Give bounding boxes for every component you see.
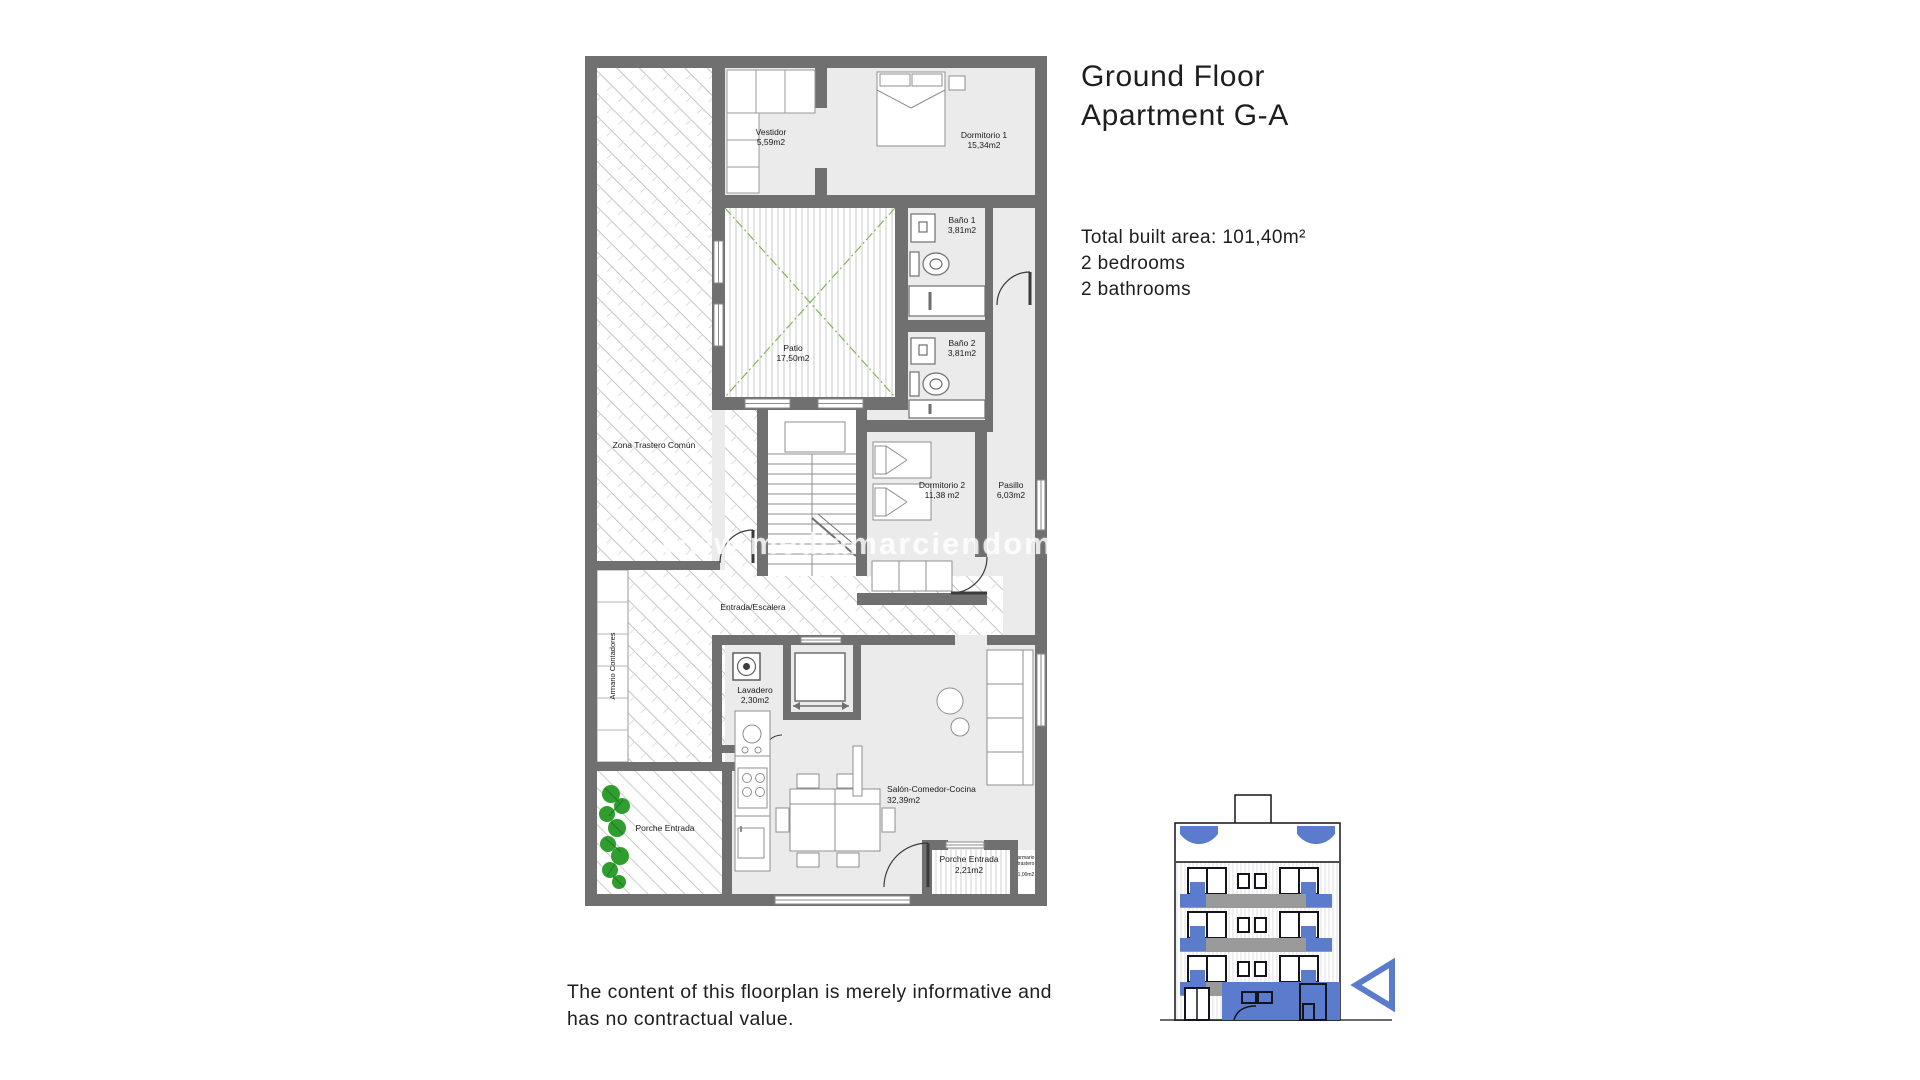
kitchen-counter (735, 711, 770, 871)
disclaimer: The content of this floorplan is merely … (567, 979, 1052, 1033)
building-ground-floor (1185, 982, 1340, 1020)
disclaimer-line-2: has no contractual value. (567, 1006, 1052, 1033)
svg-text:6,03m2: 6,03m2 (997, 490, 1026, 500)
svg-text:17,50m2: 17,50m2 (776, 353, 809, 363)
title-line-2: Apartment G-A (1081, 96, 1289, 135)
floorplan-drawing: Vestidor 5,59m2 Dormitorio 1 15,34m2 Bañ… (585, 56, 1047, 906)
building-elevation-drawing (1160, 790, 1405, 1035)
page: Vestidor 5,59m2 Dormitorio 1 15,34m2 Bañ… (0, 0, 1920, 1080)
svg-text:Vestidor: Vestidor (756, 127, 787, 137)
svg-text:Armario Contadores: Armario Contadores (608, 632, 617, 699)
svg-text:Zona Trastero Común: Zona Trastero Común (613, 440, 696, 450)
room-label: Vestidor 5,59m2 (756, 127, 787, 147)
patio (725, 208, 895, 397)
svg-text:Baño 1: Baño 1 (949, 215, 976, 225)
svg-text:Dormitorio 2: Dormitorio 2 (919, 480, 966, 490)
svg-text:Baño 2: Baño 2 (949, 338, 976, 348)
room-label: Entrada/Escalera (720, 602, 785, 612)
room-label: Dormitorio 1 15,34m2 (961, 130, 1008, 150)
svg-text:trastero: trastero (1018, 861, 1035, 867)
svg-text:3,81m2: 3,81m2 (948, 348, 977, 358)
svg-text:5,59m2: 5,59m2 (757, 137, 786, 147)
svg-text:Entrada/Escalera: Entrada/Escalera (720, 602, 785, 612)
svg-text:Patio: Patio (783, 343, 803, 353)
svg-text:Salón-Comedor-Cocina: Salón-Comedor-Cocina (887, 784, 976, 794)
building-elevation-inset (1160, 790, 1405, 1035)
svg-text:2,21m2: 2,21m2 (955, 865, 984, 875)
washer-icon (733, 653, 760, 680)
building-floors (1180, 868, 1332, 996)
room-label: Armario Contadores (608, 632, 617, 699)
svg-text:Porche Entrada: Porche Entrada (635, 823, 694, 833)
sofa-icon (987, 650, 1033, 785)
svg-text:11,38 m2: 11,38 m2 (925, 490, 960, 500)
disclaimer-line-1: The content of this floorplan is merely … (567, 979, 1052, 1006)
svg-text:Lavadero: Lavadero (737, 685, 773, 695)
svg-text:15,34m2: 15,34m2 (967, 140, 1000, 150)
total-built-area: Total built area: 101,40m² (1081, 225, 1306, 251)
console-icon (853, 746, 862, 796)
title-line-1: Ground Floor (1081, 57, 1289, 96)
bedrooms-count: 2 bedrooms (1081, 251, 1306, 277)
room-label: Baño 2 3,81m2 (948, 338, 977, 358)
room-label: Pasillo 6,03m2 (997, 480, 1026, 500)
room-label: Lavadero 2,30m2 (737, 685, 773, 705)
elevator (793, 653, 849, 710)
location-arrow-icon (1356, 963, 1392, 1007)
page-title: Ground Floor Apartment G-A (1081, 57, 1289, 135)
bathrooms-count: 2 bathrooms (1081, 277, 1306, 303)
svg-text:Pasillo: Pasillo (998, 480, 1023, 490)
room-label: Dormitorio 2 11,38 m2 (919, 480, 966, 500)
svg-text:Dormitorio 1: Dormitorio 1 (961, 130, 1008, 140)
svg-text:1,00m2: 1,00m2 (1018, 872, 1035, 878)
svg-text:3,81m2: 3,81m2 (948, 225, 977, 235)
room-label: armario trastero 1,00m2 (1018, 855, 1035, 878)
svg-text:2,30m2: 2,30m2 (741, 695, 770, 705)
floorplan: Vestidor 5,59m2 Dormitorio 1 15,34m2 Bañ… (585, 56, 1047, 906)
apartment-highlight (1222, 982, 1340, 1020)
svg-text:Porche Entrada: Porche Entrada (939, 854, 998, 864)
room-label: Porche Entrada (635, 823, 694, 833)
apartment-details: Total built area: 101,40m² 2 bedrooms 2 … (1081, 225, 1306, 303)
svg-text:32,39m2: 32,39m2 (887, 795, 920, 805)
room-label: Baño 1 3,81m2 (948, 215, 977, 235)
room-label: Zona Trastero Común (613, 440, 696, 450)
